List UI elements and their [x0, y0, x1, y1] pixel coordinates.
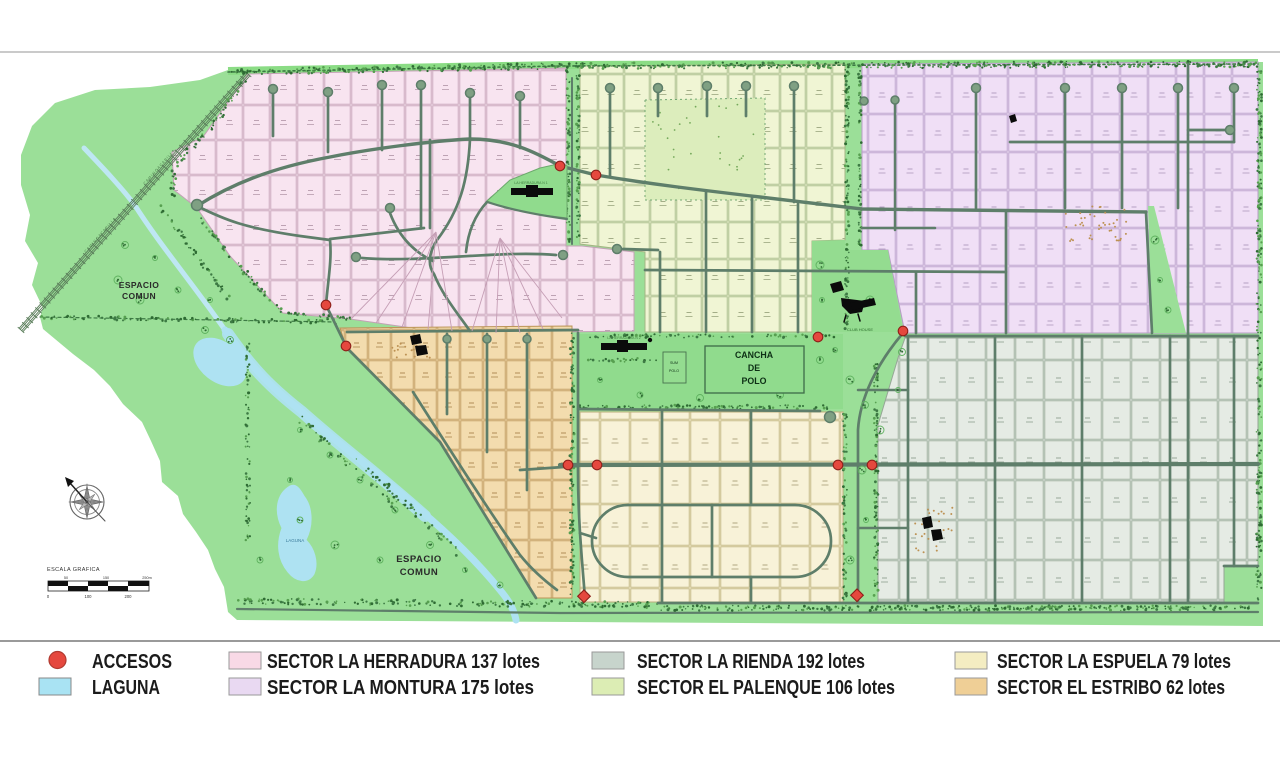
svg-text:SUM: SUM [670, 361, 678, 365]
svg-text:DE: DE [748, 363, 760, 373]
svg-text:SECTOR EL ESTRIBO 62 lotes: SECTOR EL ESTRIBO 62 lotes [997, 677, 1225, 699]
svg-text:SECTOR EL PALENQUE 106 lotes: SECTOR EL PALENQUE 106 lotes [637, 677, 895, 699]
svg-text:CLUB HOUSE: CLUB HOUSE [847, 327, 873, 332]
svg-text:100: 100 [85, 594, 93, 599]
svg-text:LA HERRADURA N 2: LA HERRADURA N 2 [607, 336, 641, 340]
svg-text:ESPACIO: ESPACIO [119, 280, 159, 290]
svg-text:200: 200 [125, 594, 133, 599]
svg-text:POLO: POLO [742, 376, 767, 386]
svg-text:COMUN: COMUN [122, 291, 156, 301]
svg-text:SECTOR LA HERRADURA 137 lotes: SECTOR LA HERRADURA 137 lotes [267, 651, 540, 673]
svg-text:ACCESOS: ACCESOS [92, 651, 172, 673]
svg-text:LAGUNA: LAGUNA [286, 538, 305, 543]
svg-text:POLO: POLO [669, 369, 679, 373]
svg-text:50: 50 [64, 576, 68, 580]
svg-text:SECTOR LA ESPUELA 79 lotes: SECTOR LA ESPUELA 79 lotes [997, 651, 1231, 673]
svg-text:LA HERRADURA N 1: LA HERRADURA N 1 [514, 181, 548, 185]
svg-text:SECTOR LA RIENDA 192 lotes: SECTOR LA RIENDA 192 lotes [637, 651, 865, 673]
svg-text:LAGUNA: LAGUNA [92, 677, 160, 699]
svg-text:250m: 250m [142, 576, 152, 580]
svg-text:150: 150 [103, 576, 109, 580]
svg-text:CANCHA: CANCHA [735, 350, 774, 360]
svg-text:SECTOR LA MONTURA 175 lotes: SECTOR LA MONTURA 175 lotes [267, 677, 534, 699]
svg-text:ESCALA GRAFICA: ESCALA GRAFICA [47, 567, 100, 573]
svg-text:COMUN: COMUN [400, 567, 438, 578]
svg-text:ESPACIO: ESPACIO [396, 554, 442, 565]
